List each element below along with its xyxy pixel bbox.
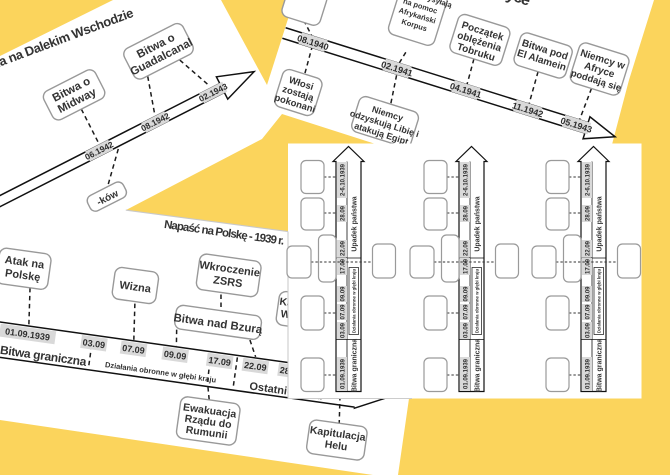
svg-text:22.09: 22.09: [585, 240, 591, 256]
svg-text:28.09: 28.09: [340, 205, 346, 221]
svg-text:03.09: 03.09: [340, 322, 346, 338]
svg-text:Upadek państwa: Upadek państwa: [352, 196, 359, 251]
svg-text:28.09: 28.09: [463, 205, 469, 221]
svg-text:09.09: 09.09: [585, 286, 591, 302]
svg-text:09.09: 09.09: [340, 286, 346, 302]
svg-text:07.09: 07.09: [585, 304, 591, 320]
svg-text:2-6.10.1939: 2-6.10.1939: [463, 163, 469, 196]
svg-text:Działania obronne w głębi kraj: Działania obronne w głębi kraju: [352, 269, 357, 334]
svg-text:07.09: 07.09: [340, 304, 346, 320]
svg-text:09.09: 09.09: [463, 286, 469, 302]
svg-text:07.09: 07.09: [463, 304, 469, 320]
svg-text:01.09.1939: 01.09.1939: [340, 358, 346, 389]
svg-text:Działania obronne w głębi kraj: Działania obronne w głębi kraju: [597, 269, 602, 334]
svg-text:Bitwa graniczna: Bitwa graniczna: [597, 339, 604, 392]
svg-text:22.09: 22.09: [340, 240, 346, 256]
svg-text:Upadek państwa: Upadek państwa: [597, 196, 604, 251]
svg-text:03.09: 03.09: [585, 322, 591, 338]
svg-text:22.09: 22.09: [463, 240, 469, 256]
svg-text:Działania obronne w głębi kraj: Działania obronne w głębi kraju: [475, 269, 480, 334]
svg-text:Bitwa graniczna: Bitwa graniczna: [352, 339, 359, 392]
svg-text:2-6.10.1939: 2-6.10.1939: [585, 163, 591, 196]
svg-text:Upadek państwa: Upadek państwa: [475, 196, 482, 251]
svg-text:28.09: 28.09: [585, 205, 591, 221]
svg-text:Bitwa graniczna: Bitwa graniczna: [475, 339, 482, 392]
svg-text:17.09: 17.09: [463, 258, 469, 274]
svg-text:03.09: 03.09: [463, 322, 469, 338]
svg-text:17.09: 17.09: [340, 258, 346, 274]
svg-text:01.09.1939: 01.09.1939: [585, 358, 591, 389]
svg-text:2-6.10.1939: 2-6.10.1939: [340, 163, 346, 196]
svg-text:17.09: 17.09: [585, 258, 591, 274]
svg-text:01.09.1939: 01.09.1939: [463, 358, 469, 389]
